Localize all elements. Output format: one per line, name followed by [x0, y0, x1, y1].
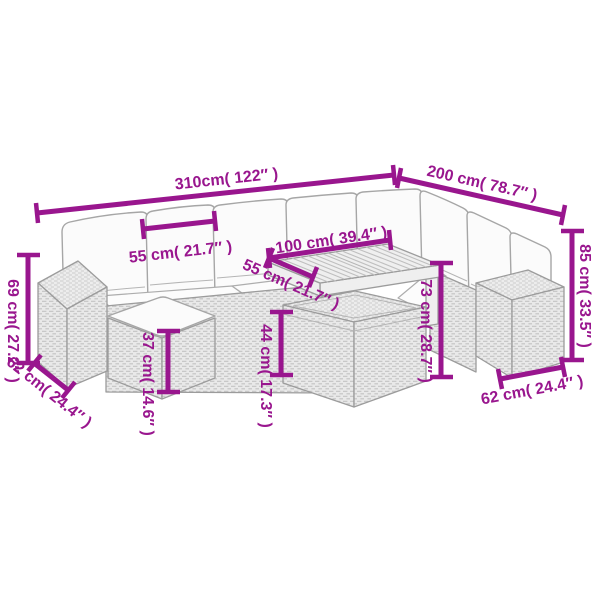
left-armrest: [38, 261, 107, 388]
right-armrest: [476, 270, 564, 378]
dim-footstool-height-label: 37 cm( 14.6″ ): [139, 332, 156, 436]
storage-box: [283, 291, 426, 407]
dim-back-height-label: 85 cm( 33.5″ ): [576, 244, 593, 348]
dim-right-section-depth-label: 62 cm( 24.4″ ): [480, 373, 585, 409]
dim-table-height-label: 73 cm( 28.7″ ): [417, 279, 434, 383]
product-dimension-image: 310cm( 122″ ) 200 cm( 78.7″ ) 55 cm( 21.…: [0, 0, 600, 600]
sofa-set-diagram: 310cm( 122″ ) 200 cm( 78.7″ ) 55 cm( 21.…: [0, 0, 600, 600]
dim-back-height: 85 cm( 33.5″ ): [561, 231, 593, 360]
footstool: [108, 297, 215, 399]
dim-storage-box-height-label: 44 cm( 17.3″ ): [257, 324, 274, 428]
